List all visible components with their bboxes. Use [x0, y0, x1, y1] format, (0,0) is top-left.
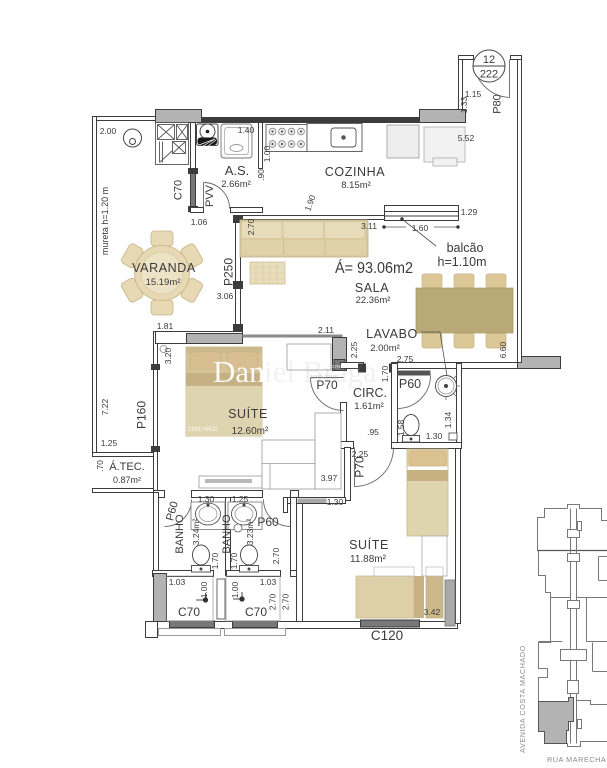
svg-text:1.30: 1.30	[327, 497, 344, 507]
svg-text:6.60: 6.60	[498, 341, 508, 358]
svg-text:1999-2019: 1999-2019	[310, 375, 336, 381]
svg-text:1.00: 1.00	[262, 145, 272, 162]
svg-text:Dan: Dan	[213, 354, 265, 389]
svg-text:1.90: 1.90	[302, 193, 317, 212]
svg-text:P80: P80	[492, 94, 504, 114]
svg-text:P60: P60	[257, 515, 279, 529]
svg-text:mureta h=1.20 m: mureta h=1.20 m	[100, 187, 110, 255]
svg-text:12: 12	[483, 54, 495, 66]
svg-text:.70: .70	[95, 460, 105, 472]
svg-text:1.30: 1.30	[198, 494, 215, 504]
svg-text:1.00: 1.00	[230, 581, 240, 598]
svg-text:2.70: 2.70	[268, 593, 278, 610]
svg-text:3.06: 3.06	[217, 291, 234, 301]
svg-text:VARANDA: VARANDA	[132, 261, 196, 275]
svg-text:RUA MARECHAL RODR: RUA MARECHAL RODR	[547, 755, 607, 764]
svg-text:1.70: 1.70	[380, 365, 390, 382]
svg-text:C120: C120	[371, 628, 403, 643]
svg-text:1.61m²: 1.61m²	[354, 401, 384, 412]
svg-text:PVV: PVV	[204, 184, 216, 207]
svg-text:2.00: 2.00	[100, 126, 117, 136]
svg-text:P60: P60	[399, 377, 421, 391]
svg-text:1.60: 1.60	[412, 223, 429, 233]
svg-text:2.66m²: 2.66m²	[221, 179, 251, 190]
svg-text:1.03: 1.03	[260, 577, 277, 587]
svg-text:Á= 93.06m2: Á= 93.06m2	[335, 258, 413, 277]
svg-text:2.75: 2.75	[397, 354, 414, 364]
svg-text:P70: P70	[353, 456, 367, 478]
svg-text:SALA: SALA	[355, 281, 389, 295]
svg-text:1.58: 1.58	[396, 419, 406, 436]
svg-text:1.81: 1.81	[157, 321, 174, 331]
svg-text:COZINHA: COZINHA	[325, 165, 386, 179]
svg-text:2.00m²: 2.00m²	[370, 343, 400, 354]
svg-text:1.25: 1.25	[232, 494, 249, 504]
svg-text:222: 222	[480, 69, 498, 81]
svg-text:7.22: 7.22	[100, 398, 110, 415]
svg-text:iel Braga: iel Braga	[264, 354, 377, 389]
svg-text:1.06: 1.06	[191, 217, 208, 227]
svg-text:0.87m²: 0.87m²	[113, 475, 141, 485]
svg-text:LAVABO: LAVABO	[366, 327, 418, 341]
svg-text:CRECI: CRECI	[332, 364, 346, 369]
svg-text:C70: C70	[178, 605, 200, 619]
svg-text:5.52: 5.52	[458, 133, 475, 143]
svg-text:1.40: 1.40	[238, 125, 255, 135]
svg-text:1.29: 1.29	[461, 207, 478, 217]
svg-text:BANHO: BANHO	[221, 514, 233, 554]
svg-text:2.25: 2.25	[352, 449, 369, 459]
svg-text:Á.TEC.: Á.TEC.	[109, 460, 144, 473]
svg-text:1.70: 1.70	[210, 552, 220, 569]
svg-text:8.15m²: 8.15m²	[341, 180, 371, 191]
svg-text:balcão: balcão	[447, 241, 484, 255]
svg-text:C70: C70	[173, 180, 185, 200]
svg-text:1.00: 1.00	[199, 581, 209, 598]
svg-text:2.70: 2.70	[246, 218, 256, 235]
svg-text:22.36m²: 22.36m²	[356, 295, 391, 306]
svg-text:.95: .95	[367, 427, 379, 437]
svg-text:15.19m²: 15.19m²	[146, 277, 181, 288]
svg-text:11.88m²: 11.88m²	[350, 554, 387, 565]
svg-text:A.S.: A.S.	[225, 163, 250, 178]
svg-text:12.60m²: 12.60m²	[232, 426, 269, 437]
svg-text:2.11: 2.11	[318, 325, 334, 335]
svg-text:3.23m²: 3.23m²	[245, 519, 255, 546]
svg-text:1.33: 1.33	[459, 96, 469, 113]
svg-text:1.34: 1.34	[443, 411, 453, 428]
svg-text:3.97: 3.97	[321, 473, 338, 483]
svg-text:1.30: 1.30	[426, 431, 443, 441]
svg-text:SUÍTE: SUÍTE	[349, 537, 389, 552]
svg-text:h=1.10m: h=1.10m	[438, 255, 487, 269]
svg-text:1891+6611: 1891+6611	[188, 427, 218, 433]
svg-text:3.11: 3.11	[361, 221, 377, 231]
svg-text:2.70: 2.70	[271, 547, 281, 564]
svg-text:C70: C70	[245, 605, 267, 619]
svg-text:.90: .90	[256, 169, 266, 181]
svg-text:1.25: 1.25	[101, 438, 118, 448]
svg-text:1.03: 1.03	[169, 577, 186, 587]
svg-text:3.24m²: 3.24m²	[191, 519, 201, 546]
svg-text:SUÍTE: SUÍTE	[228, 406, 268, 421]
svg-text:P160: P160	[135, 401, 149, 429]
svg-text:1.70: 1.70	[229, 552, 239, 569]
svg-text:P250: P250	[222, 258, 236, 286]
svg-text:AVENIDA COSTA MACHADO: AVENIDA COSTA MACHADO	[518, 645, 527, 753]
svg-text:2.70: 2.70	[281, 593, 291, 610]
svg-text:3.20: 3.20	[163, 347, 173, 364]
svg-text:3.42: 3.42	[424, 607, 441, 617]
